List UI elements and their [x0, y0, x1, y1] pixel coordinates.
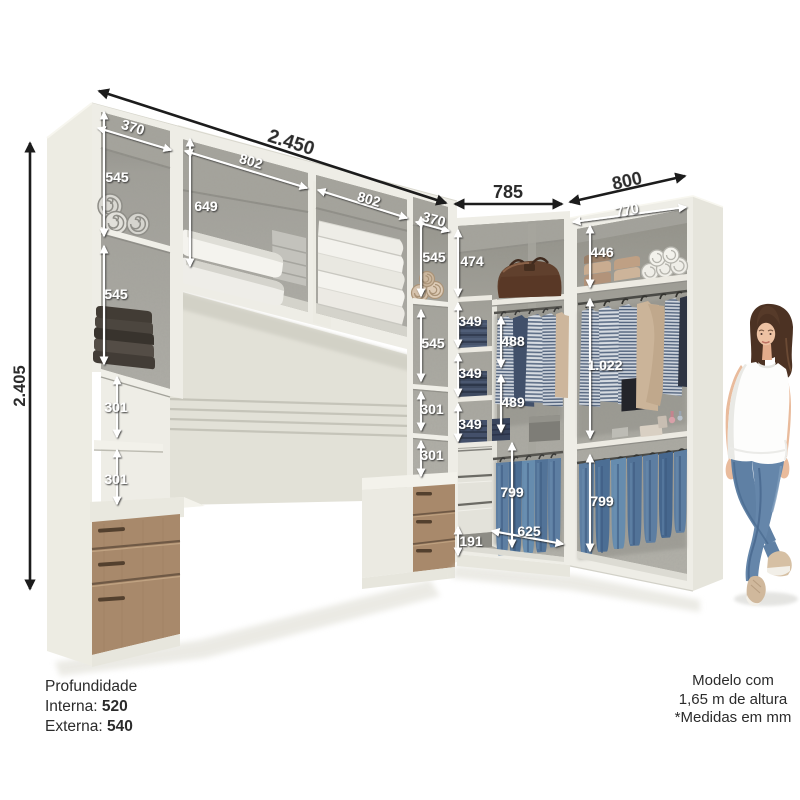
- svg-text:625: 625: [517, 523, 541, 539]
- svg-text:2.405: 2.405: [11, 365, 29, 406]
- svg-text:446: 446: [590, 244, 614, 260]
- svg-text:545: 545: [421, 335, 445, 351]
- svg-text:649: 649: [194, 198, 218, 214]
- svg-text:349: 349: [458, 416, 482, 432]
- svg-text:1,65 m de altura: 1,65 m de altura: [679, 691, 788, 708]
- svg-text:301: 301: [420, 401, 444, 417]
- svg-text:1.022: 1.022: [587, 357, 622, 373]
- svg-text:Externa: 540: Externa: 540: [45, 718, 133, 735]
- svg-text:Modelo com: Modelo com: [692, 672, 774, 689]
- svg-text:545: 545: [422, 249, 446, 265]
- svg-text:191: 191: [459, 533, 483, 549]
- svg-text:349: 349: [458, 365, 482, 381]
- svg-text:*Medidas em mm: *Medidas em mm: [675, 709, 792, 726]
- svg-text:301: 301: [420, 447, 444, 463]
- svg-text:488: 488: [501, 333, 525, 349]
- svg-text:799: 799: [500, 484, 524, 500]
- svg-text:Interna: 520: Interna: 520: [45, 698, 128, 715]
- svg-text:785: 785: [493, 182, 523, 202]
- svg-text:474: 474: [460, 253, 484, 269]
- svg-text:545: 545: [105, 169, 129, 185]
- svg-text:545: 545: [104, 286, 128, 302]
- svg-text:301: 301: [104, 471, 128, 487]
- svg-text:349: 349: [458, 313, 482, 329]
- svg-text:301: 301: [104, 399, 128, 415]
- svg-text:489: 489: [501, 394, 525, 410]
- svg-text:Profundidade: Profundidade: [45, 678, 137, 695]
- svg-text:799: 799: [590, 493, 614, 509]
